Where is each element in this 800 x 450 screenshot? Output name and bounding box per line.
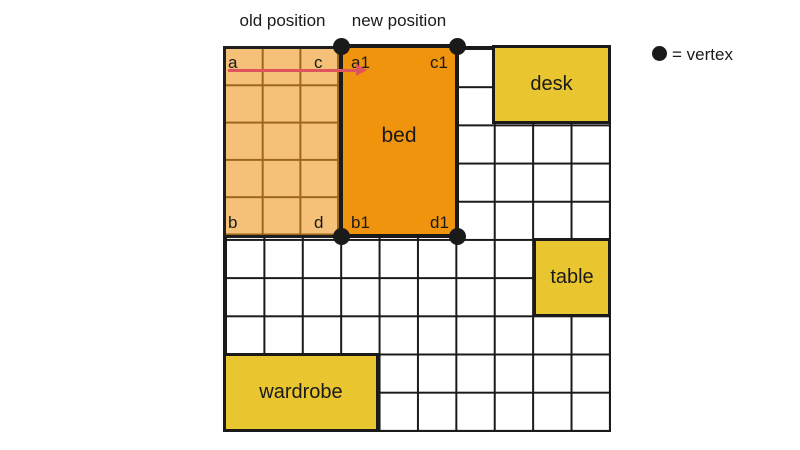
vertex-label-d1: d1 — [430, 214, 449, 231]
vertex-label-b: b — [228, 214, 237, 231]
bed-label: bed — [339, 124, 459, 148]
vertex-legend-dot-icon — [652, 46, 667, 61]
vertex-dot-d1 — [449, 228, 466, 245]
translation-arrow-head — [356, 64, 367, 76]
bed-old-position-box — [223, 46, 342, 238]
vertex-legend-text: = vertex — [672, 45, 733, 65]
table-box: table — [533, 238, 611, 317]
vertex-dot-a1 — [333, 38, 350, 55]
vertex-dot-b1 — [333, 228, 350, 245]
translation-arrow-line — [228, 69, 356, 72]
desk-label: desk — [530, 73, 572, 96]
new-position-label: new position — [339, 11, 459, 31]
vertex-label-c1: c1 — [430, 54, 448, 71]
wardrobe-box: wardrobe — [223, 353, 379, 432]
old-position-label: old position — [223, 11, 342, 31]
vertex-label-b1: b1 — [351, 214, 370, 231]
vertex-dot-c1 — [449, 38, 466, 55]
floor-plan-diagram: old position new position a c b d bed a1… — [0, 0, 800, 450]
vertex-label-d: d — [314, 214, 323, 231]
desk-box: desk — [492, 45, 611, 124]
table-label: table — [550, 266, 593, 289]
wardrobe-label: wardrobe — [259, 381, 342, 404]
